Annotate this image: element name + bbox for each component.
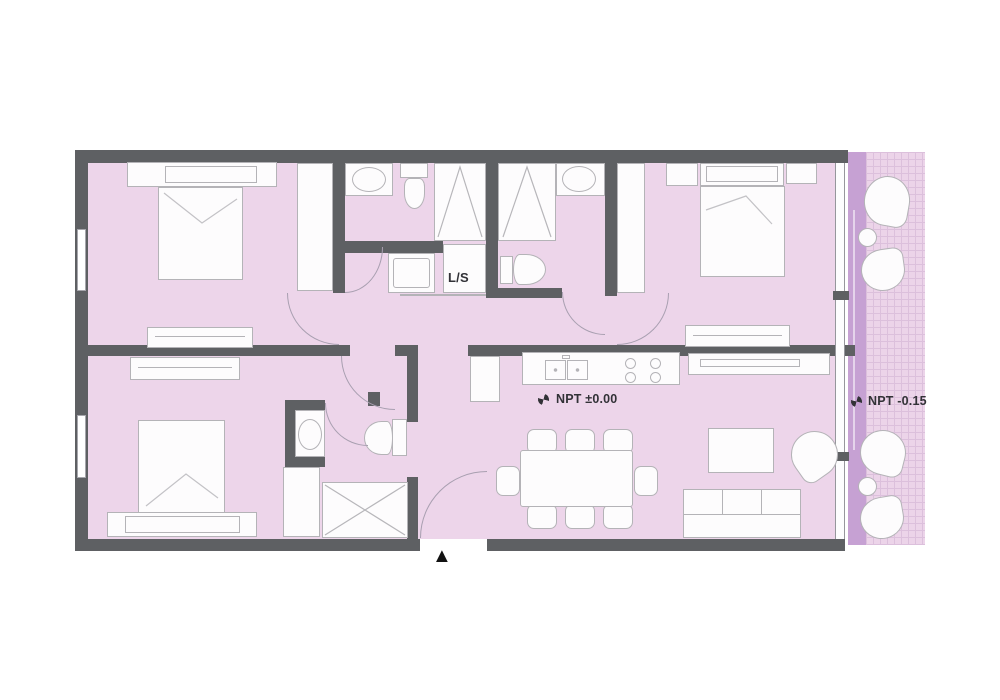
bath2-toilet-tank: [500, 256, 513, 284]
stove-burner-icon: [625, 372, 636, 383]
bath3-sink-icon: [298, 419, 322, 450]
sofa-cushion: [683, 489, 724, 516]
wall-bottom-right: [487, 539, 845, 551]
dining-chair: [634, 466, 658, 496]
bath3-closet: [283, 467, 320, 537]
bed2-pillow: [706, 166, 778, 182]
tv-icon: [700, 359, 800, 367]
wall-bath3-right-upper: [407, 405, 418, 422]
wall-corridor: [407, 345, 418, 405]
bed2-dresser-line: [693, 335, 782, 336]
bath2-shower-marks: [498, 163, 556, 241]
sofa-cushion: [722, 489, 763, 516]
wall-bottom-left: [75, 539, 420, 551]
bath1-sink-icon: [352, 167, 386, 192]
dining-chair: [603, 504, 633, 529]
floor-plan-canvas: L/S NPT ±0.00: [0, 0, 1000, 700]
laundry-slider-track: [400, 294, 486, 296]
kitchen-faucet-icon: [562, 355, 570, 359]
bed2-nightstand-left: [666, 163, 698, 186]
wall-bedroom1-bath: [333, 163, 345, 293]
bed1-closet: [297, 163, 333, 291]
sofa-seat: [683, 514, 801, 538]
kitchen-sink-right-icon: [567, 360, 588, 380]
interior-level-label: NPT ±0.00: [556, 393, 617, 406]
wall-bath3-left: [285, 400, 295, 462]
bed2-dresser: [685, 325, 790, 347]
balcony-level-label: NPT -0.15: [868, 395, 927, 408]
dining-chair: [496, 466, 520, 496]
bed1-blanket-fold: [158, 187, 243, 231]
stove-burner-icon: [625, 358, 636, 369]
bath3-toilet-tank: [392, 419, 407, 456]
bed3-blanket-fold: [138, 462, 225, 512]
bed2-closet: [617, 163, 645, 293]
bed1-dresser: [147, 327, 253, 348]
glazing-right: [835, 163, 845, 539]
bath1-toilet-icon: [404, 178, 425, 209]
washer-icon: [393, 258, 430, 288]
bed2-blanket-fold: [700, 186, 785, 232]
bath1-toilet-tank: [400, 163, 428, 178]
bed1-pillow: [165, 166, 257, 183]
laundry-closet: [443, 244, 486, 293]
bath3-shower-marks: [322, 482, 408, 538]
wall-bath1-bath2: [486, 163, 498, 242]
dining-chair: [565, 504, 595, 529]
bed3-dresser: [130, 357, 240, 380]
dining-chair: [527, 504, 557, 529]
sliding-door-track: [853, 210, 855, 450]
bed2-nightstand-right: [786, 163, 817, 184]
balcony-table-icon: [858, 228, 877, 247]
bath3-toilet-icon: [364, 421, 393, 455]
wall-bath3-right-lower: [407, 477, 418, 539]
kitchen-sink-left-icon: [545, 360, 566, 380]
dining-table: [520, 450, 633, 507]
bed3-pillow: [125, 516, 240, 533]
stove-burner-icon: [650, 372, 661, 383]
laundry-label: L/S: [448, 271, 469, 284]
glazing-mullion-upper: [833, 291, 849, 300]
wall-bath3-mid: [285, 457, 325, 467]
coffee-table: [708, 428, 774, 473]
bed1-dresser-line: [155, 336, 245, 337]
window-left-lower: [77, 415, 86, 478]
wall-bath2-bottom: [486, 288, 562, 298]
bath1-shower-marks: [434, 163, 486, 241]
bed3-dresser-line: [138, 367, 232, 368]
fridge-icon: [470, 356, 500, 402]
wall-bath2-bedroom2: [605, 163, 617, 296]
entrance-arrow-icon: ▲: [432, 546, 452, 566]
sofa-cushion: [761, 489, 801, 516]
window-left-upper: [77, 229, 86, 291]
bath2-sink-icon: [562, 166, 596, 192]
stove-burner-icon: [650, 358, 661, 369]
balcony-table-icon: [858, 477, 877, 496]
